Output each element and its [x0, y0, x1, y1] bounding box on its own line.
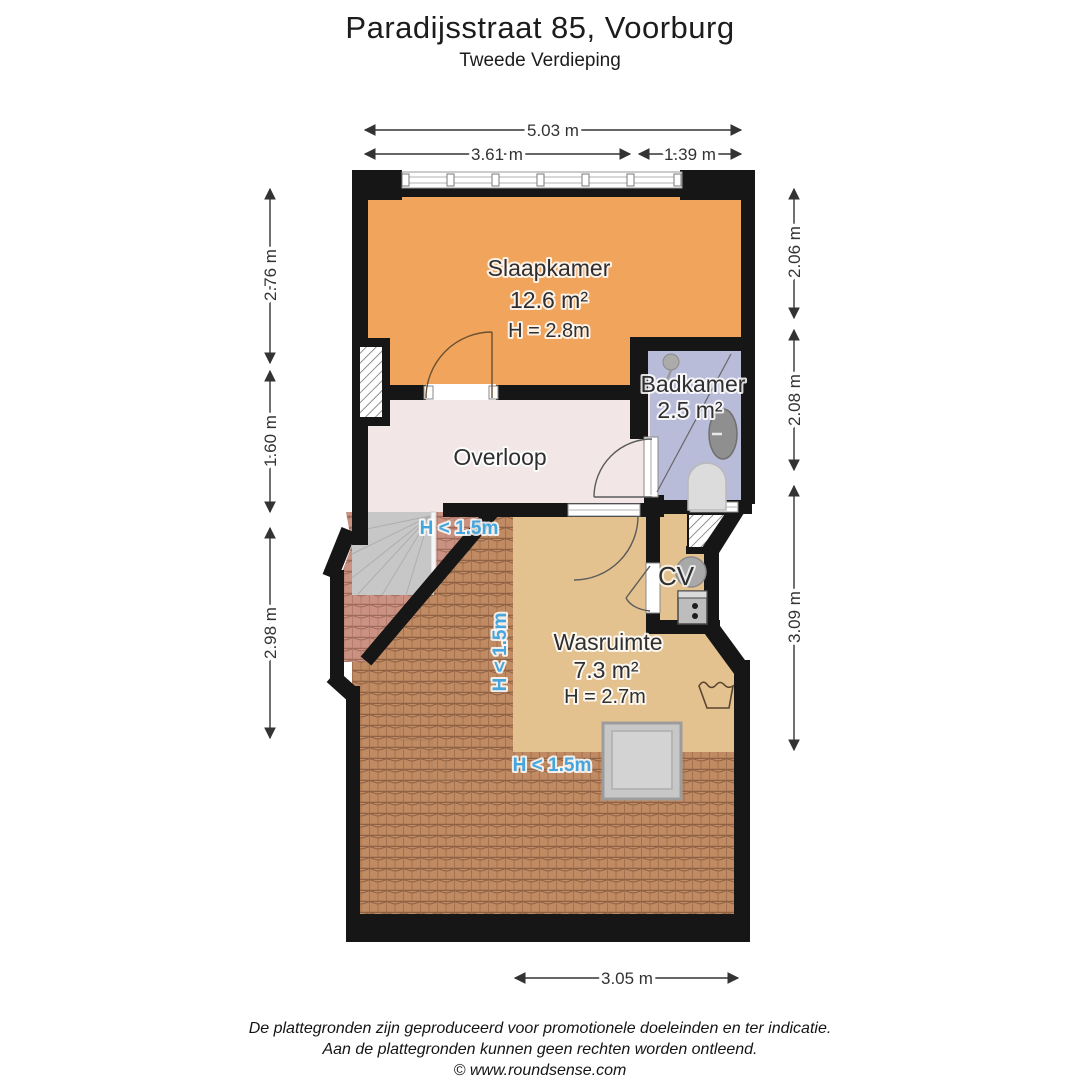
floor-plan-canvas: Slaapkamer 12.6 m² H = 2.8m Badkamer 2.5…: [0, 0, 1080, 1080]
top-window: [402, 172, 682, 188]
slaapkamer-name: Slaapkamer: [488, 255, 611, 281]
dim-left-bottom: 2.98 m: [261, 607, 280, 659]
footer-credit: © www.roundsense.com: [0, 1060, 1080, 1081]
badkamer-name: Badkamer: [641, 371, 746, 397]
dim-top-total: 5.03 m: [527, 121, 579, 140]
dim-left-top: 2.76 m: [261, 249, 280, 301]
dim-top-left: 3.61 m: [471, 145, 523, 164]
slaapkamer-door-opening: [426, 384, 496, 400]
overloop-name: Overloop: [453, 444, 546, 470]
dim-left-middle: 1.60 m: [261, 415, 280, 467]
footer: De plattegronden zijn geproduceerd voor …: [0, 1018, 1080, 1081]
footer-disclaimer-2: Aan de plattegronden kunnen geen rechten…: [0, 1039, 1080, 1060]
cv-name: CV: [658, 561, 695, 591]
wasruimte-name: Wasruimte: [553, 629, 662, 655]
slaapkamer-ceiling: H = 2.8m: [508, 320, 590, 342]
toilet-icon: [688, 463, 726, 510]
skylight-window: [603, 723, 681, 799]
slaapkamer-area: 12.6 m²: [510, 287, 588, 313]
low-headroom-bottom: H < 1.5m: [513, 755, 592, 776]
dim-right-middle: 2.08 m: [785, 374, 804, 426]
dim-right-bottom: 3.09 m: [785, 591, 804, 643]
footer-disclaimer-1: De plattegronden zijn geproduceerd voor …: [0, 1018, 1080, 1039]
cv-appliance-icon: [678, 591, 707, 624]
wasruimte-area: 7.3 m²: [573, 657, 639, 683]
dim-top-right: 1.39 m: [664, 145, 716, 164]
dim-right-top: 2.06 m: [785, 226, 804, 278]
shaft-hatch: [359, 346, 383, 418]
wasruimte-ceiling: H = 2.7m: [564, 686, 646, 708]
low-headroom-side: H < 1.5m: [490, 613, 511, 692]
badkamer-area: 2.5 m²: [657, 397, 723, 423]
dim-bottom: 3.05 m: [601, 969, 653, 988]
low-headroom-stairs: H < 1.5m: [420, 518, 499, 539]
